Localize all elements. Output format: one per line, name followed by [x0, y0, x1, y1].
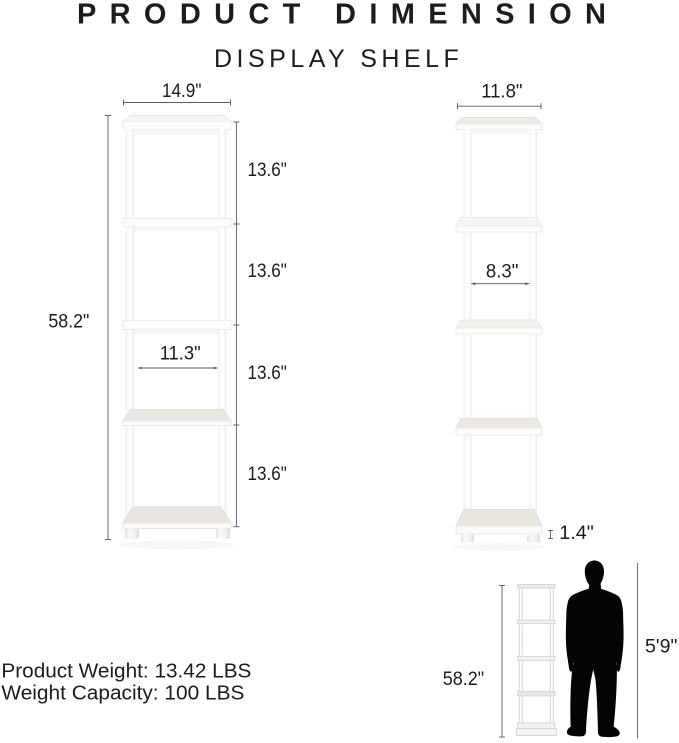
svg-text:13.6": 13.6"	[248, 363, 287, 384]
svg-text:11.8": 11.8"	[481, 82, 522, 103]
svg-text:11.3": 11.3"	[160, 344, 201, 365]
svg-text:Weight Capacity: 100 LBS: Weight Capacity: 100 LBS	[1, 682, 244, 705]
svg-text:13.6": 13.6"	[248, 464, 287, 485]
svg-text:14.9": 14.9"	[162, 81, 201, 102]
svg-text:13.6": 13.6"	[248, 160, 287, 181]
svg-text:5'9": 5'9"	[645, 637, 678, 658]
svg-text:13.6": 13.6"	[248, 261, 287, 282]
svg-text:DISPLAY SHELF: DISPLAY SHELF	[214, 45, 463, 73]
svg-text:58.2": 58.2"	[48, 312, 89, 333]
svg-text:PRODUCT DIMENSION: PRODUCT DIMENSION	[77, 0, 617, 31]
svg-text:58.2": 58.2"	[443, 669, 484, 690]
svg-text:Product Weight: 13.42 LBS: Product Weight: 13.42 LBS	[1, 660, 251, 683]
svg-text:8.3": 8.3"	[486, 262, 519, 283]
svg-text:1.4": 1.4"	[559, 523, 594, 544]
